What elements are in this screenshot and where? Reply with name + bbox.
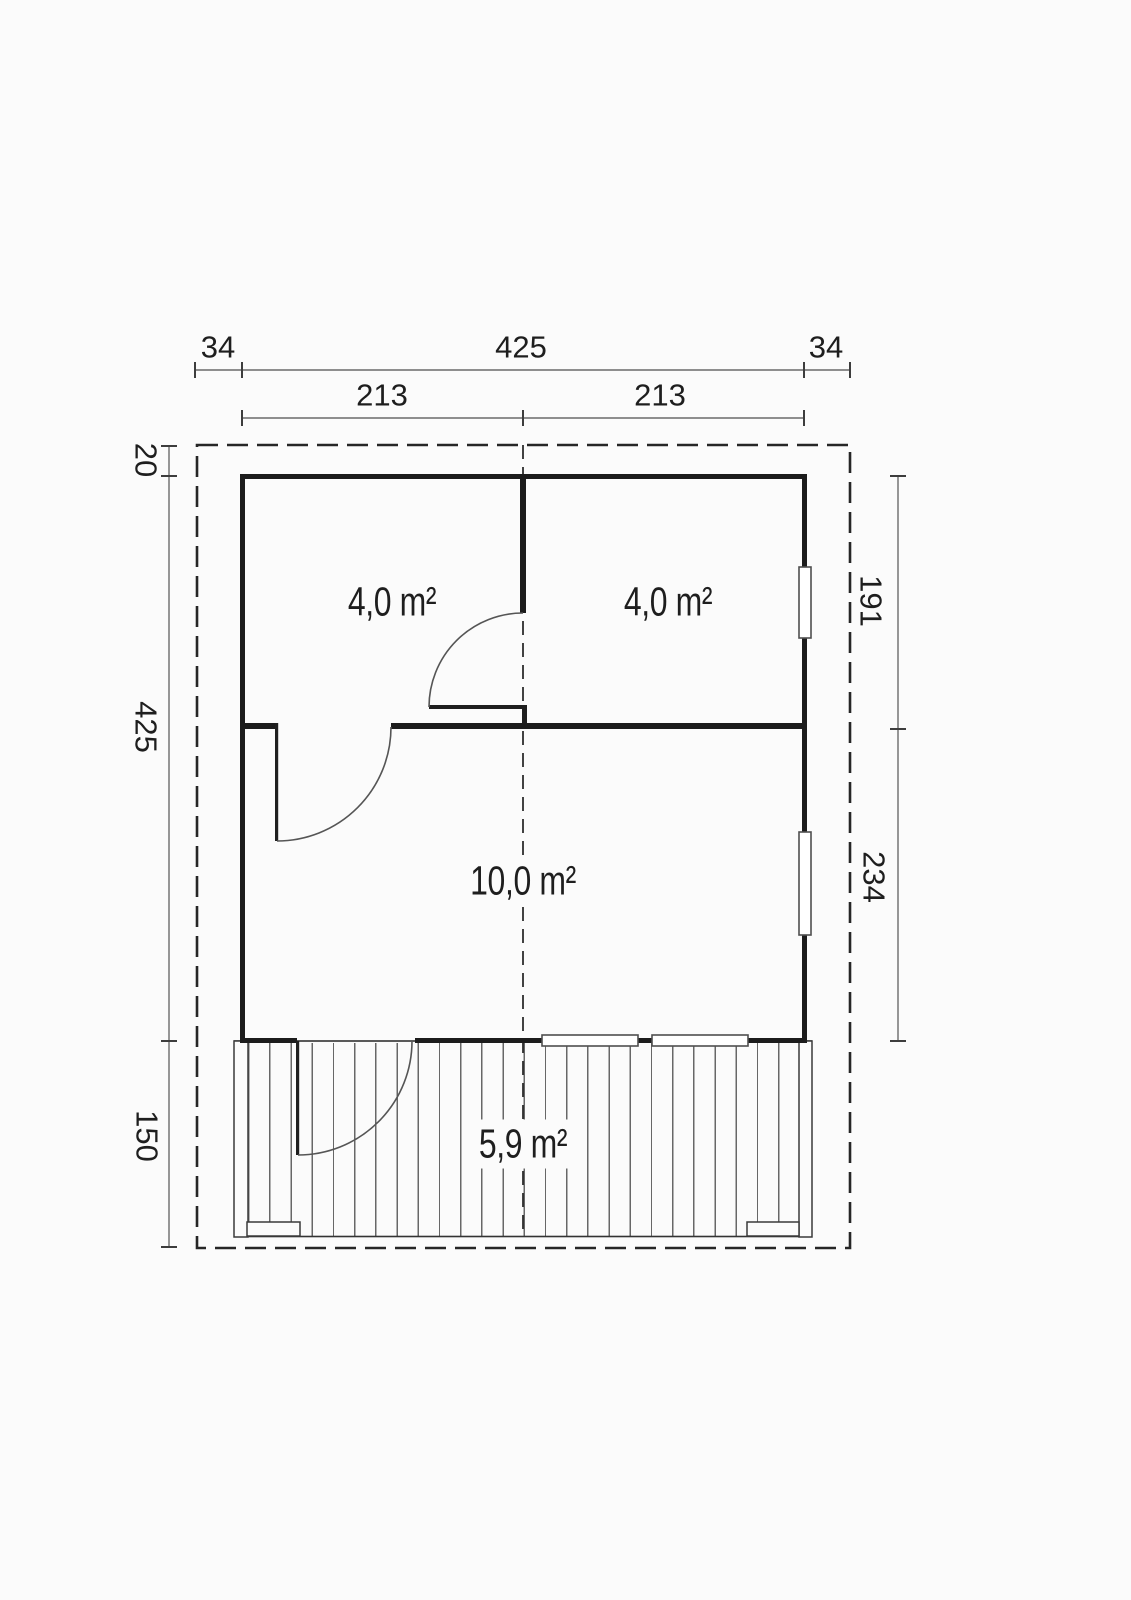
door-jamb-top-room	[522, 709, 527, 723]
door-leaf-terrace	[296, 1041, 299, 1155]
wall-bottom-seg2	[415, 1038, 542, 1043]
dim-label-depth-total: 425	[131, 701, 162, 753]
dim-label-eave-left: 34	[201, 332, 235, 363]
wall-bottom-seg3	[638, 1038, 652, 1043]
dim-label-eave-right: 34	[809, 332, 843, 363]
floor-plan-drawing	[0, 0, 1131, 1600]
window-right-upper	[799, 567, 811, 638]
dim-label-terrace-depth: 150	[132, 1110, 163, 1162]
wall-interior-stub-left	[240, 723, 277, 729]
wall-center-vertical	[520, 474, 526, 613]
window-bottom-right	[652, 1035, 748, 1046]
room-area-label-top-right: 4,0 m²	[624, 582, 712, 623]
dim-label-room-depth-lower: 234	[859, 851, 890, 903]
door-leaf-top-room	[429, 705, 527, 709]
dim-label-eave-top: 20	[131, 443, 162, 477]
dimension-lines	[169, 370, 898, 1247]
wall-right-middle	[802, 638, 807, 832]
dim-label-room-width-left: 213	[356, 380, 408, 411]
wall-bottom-seg1	[240, 1038, 297, 1043]
dimension-ticks	[161, 362, 906, 1247]
wall-right-lower	[802, 935, 807, 1043]
door-arc-terrace	[298, 1041, 412, 1155]
terrace-railing-left	[234, 1041, 248, 1237]
terrace-step-block-left	[247, 1222, 300, 1236]
door-arc-top-room	[429, 613, 523, 707]
floor-plan-canvas: 34 425 34 213 213 20 425 150 191 234 4,0…	[0, 0, 1131, 1600]
room-area-label-main: 10,0 m²	[463, 857, 583, 906]
terrace-railing-right	[799, 1041, 812, 1237]
window-right-lower	[799, 832, 811, 935]
wall-right-upper	[802, 474, 807, 567]
windows	[542, 567, 811, 1046]
door-arc-main-room	[277, 727, 391, 841]
wall-left	[240, 474, 245, 1043]
dim-label-room-depth-upper: 191	[856, 575, 887, 627]
terrace-step-block-right	[747, 1222, 799, 1236]
door-leaf-main-room	[275, 723, 278, 841]
dim-label-room-width-right: 213	[634, 380, 686, 411]
wall-bottom-seg4	[748, 1038, 807, 1043]
room-area-label-terrace: 5,9 m²	[472, 1120, 574, 1169]
room-area-label-top-left: 4,0 m²	[348, 582, 436, 623]
dim-label-width-total: 425	[495, 332, 547, 363]
wall-interior-horizontal	[391, 723, 807, 729]
window-bottom-left	[542, 1035, 638, 1046]
